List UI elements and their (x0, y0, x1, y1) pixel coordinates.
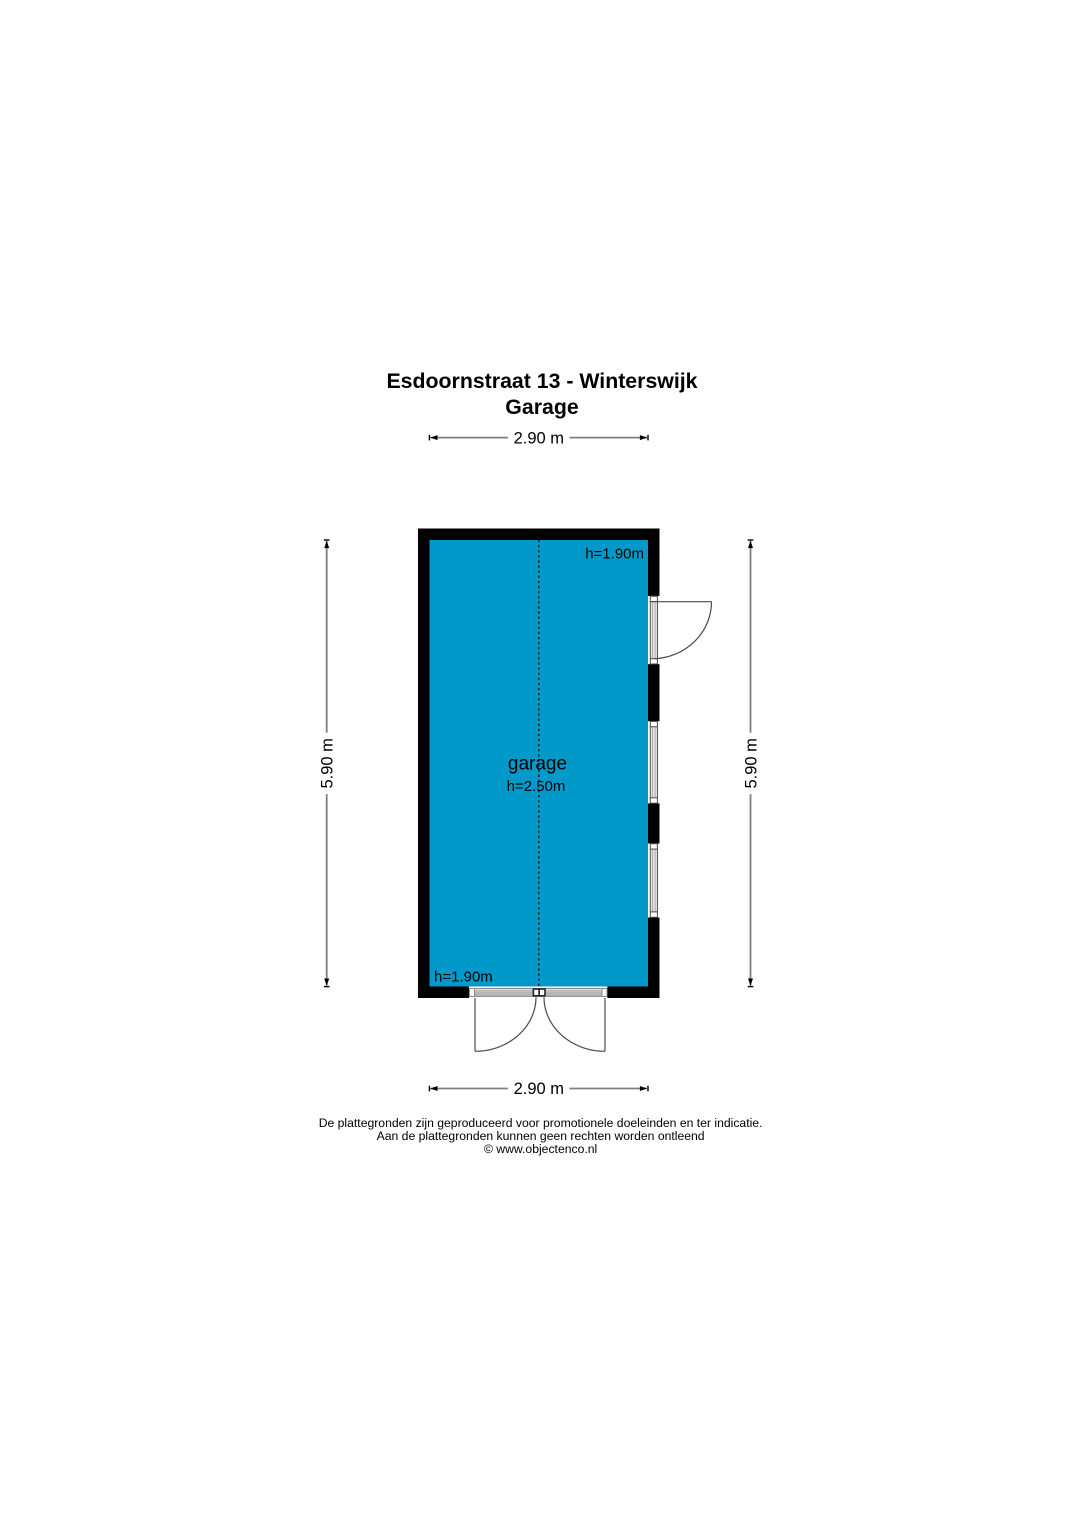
svg-text:Aan de plattegronden kunnen ge: Aan de plattegronden kunnen geen rechten… (377, 1129, 705, 1143)
svg-text:Esdoornstraat 13 - Winterswijk: Esdoornstraat 13 - Winterswijk (386, 369, 697, 393)
svg-text:5.90 m: 5.90 m (319, 738, 337, 788)
svg-text:De plattegronden zijn geproduc: De plattegronden zijn geproduceerd voor … (319, 1116, 763, 1130)
svg-text:h=1.90m: h=1.90m (434, 968, 493, 985)
svg-text:© www.objectenco.nl: © www.objectenco.nl (484, 1142, 597, 1156)
svg-text:h=1.90m: h=1.90m (585, 546, 644, 563)
svg-text:h=2.50m: h=2.50m (507, 778, 566, 795)
svg-text:garage: garage (508, 754, 567, 775)
svg-text:2.90 m: 2.90 m (514, 429, 564, 447)
svg-text:5.90 m: 5.90 m (742, 738, 760, 788)
svg-text:2.90 m: 2.90 m (514, 1080, 564, 1098)
svg-text:Garage: Garage (505, 395, 579, 419)
